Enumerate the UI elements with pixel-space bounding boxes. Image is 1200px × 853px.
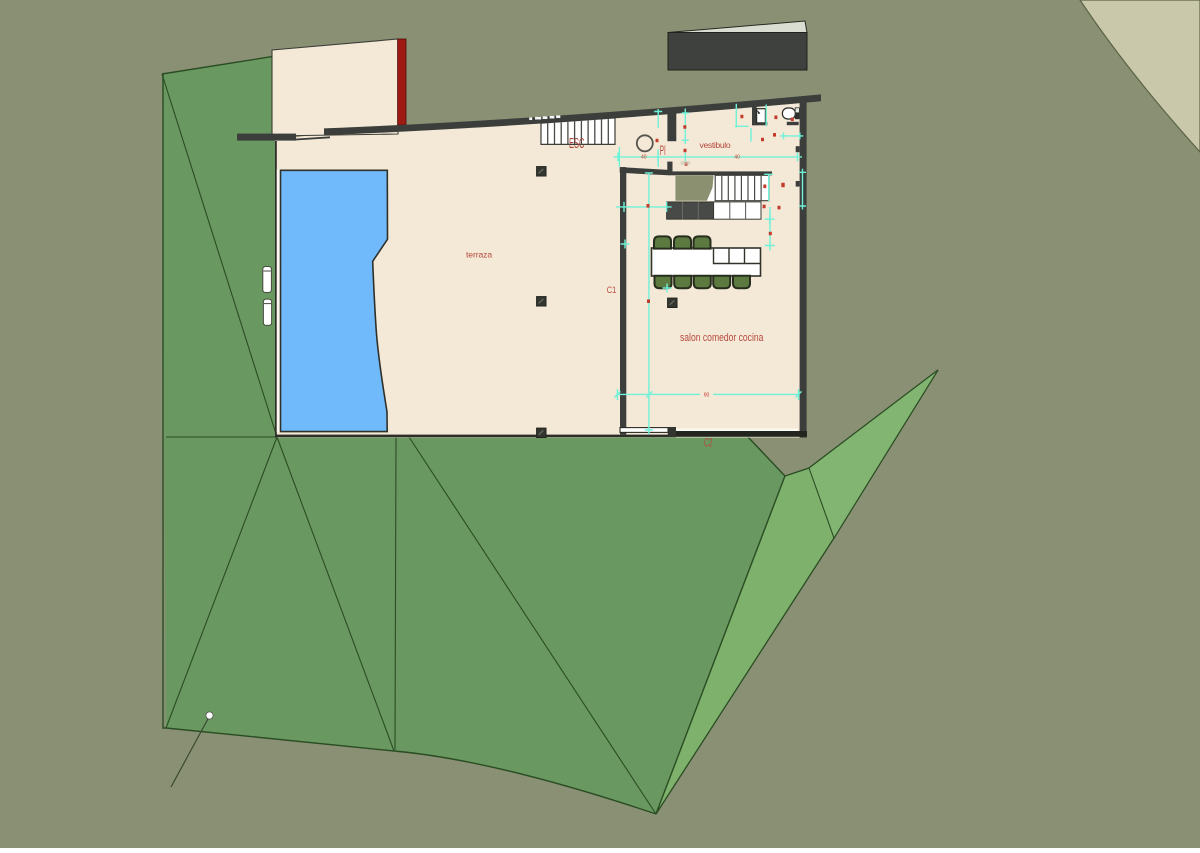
svg-text:C2: C2 [704, 436, 712, 450]
svg-text:40: 40 [734, 154, 740, 160]
svg-text:C1: C1 [607, 284, 617, 295]
svg-text:terraza: terraza [466, 250, 492, 260]
svg-text:vestibulo: vestibulo [700, 140, 731, 150]
svg-text:90: 90 [704, 392, 710, 398]
svg-text:40: 40 [641, 154, 647, 160]
svg-text:salon comedor cocina: salon comedor cocina [680, 332, 764, 344]
svg-text:ESC: ESC [569, 137, 584, 152]
svg-text:PI: PI [660, 144, 666, 159]
